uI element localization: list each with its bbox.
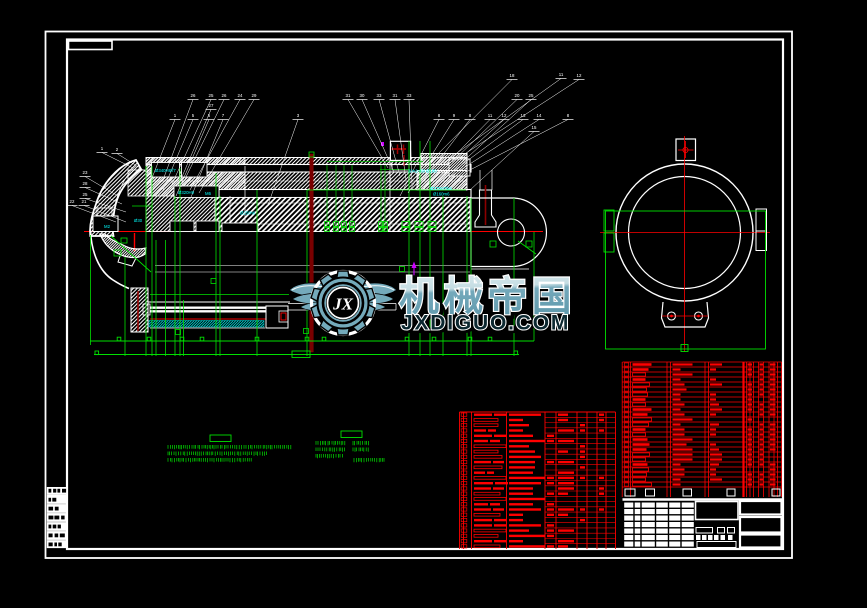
svg-text:M2: M2	[104, 224, 111, 229]
svg-text:21: 21	[82, 199, 87, 204]
svg-text:25: 25	[209, 93, 214, 98]
svg-text:11: 11	[559, 72, 564, 77]
svg-text:11: 11	[488, 113, 493, 118]
svg-text:25: 25	[529, 93, 534, 98]
svg-text:30: 30	[360, 93, 365, 98]
svg-text:JX: JX	[332, 295, 354, 314]
svg-text:23: 23	[83, 170, 88, 175]
svg-text:33: 33	[407, 93, 412, 98]
svg-text:25: 25	[83, 192, 88, 197]
svg-text:Ø160m6: Ø160m6	[433, 192, 450, 197]
svg-text:Ø30: Ø30	[134, 218, 143, 223]
svg-text:Ø340H8/f7: Ø340H8/f7	[155, 168, 176, 173]
svg-text:31: 31	[346, 93, 351, 98]
svg-text:31: 31	[393, 93, 398, 98]
svg-text:M6: M6	[205, 191, 212, 196]
svg-text:Ø170H7/k6: Ø170H7/k6	[430, 186, 452, 191]
svg-text:33: 33	[377, 93, 382, 98]
svg-text:JXDIGUO.COM: JXDIGUO.COM	[401, 312, 570, 335]
svg-text:Ø250h6: Ø250h6	[240, 211, 256, 216]
svg-text:14: 14	[537, 113, 542, 118]
svg-text:30×2=60 Ø180: 30×2=60 Ø180	[408, 169, 437, 174]
svg-text:26: 26	[191, 93, 196, 98]
svg-text:Ø320H9: Ø320H9	[178, 190, 195, 195]
svg-text:15: 15	[532, 125, 537, 130]
svg-text:27: 27	[209, 103, 214, 108]
svg-text:26: 26	[222, 93, 227, 98]
svg-text:28: 28	[83, 181, 88, 186]
svg-text:12: 12	[577, 73, 582, 78]
svg-text:20: 20	[515, 93, 520, 98]
svg-text:29: 29	[252, 93, 257, 98]
svg-text:12: 12	[502, 113, 507, 118]
svg-text:22: 22	[70, 199, 75, 204]
svg-text:18: 18	[510, 73, 515, 78]
svg-text:24: 24	[238, 93, 243, 98]
